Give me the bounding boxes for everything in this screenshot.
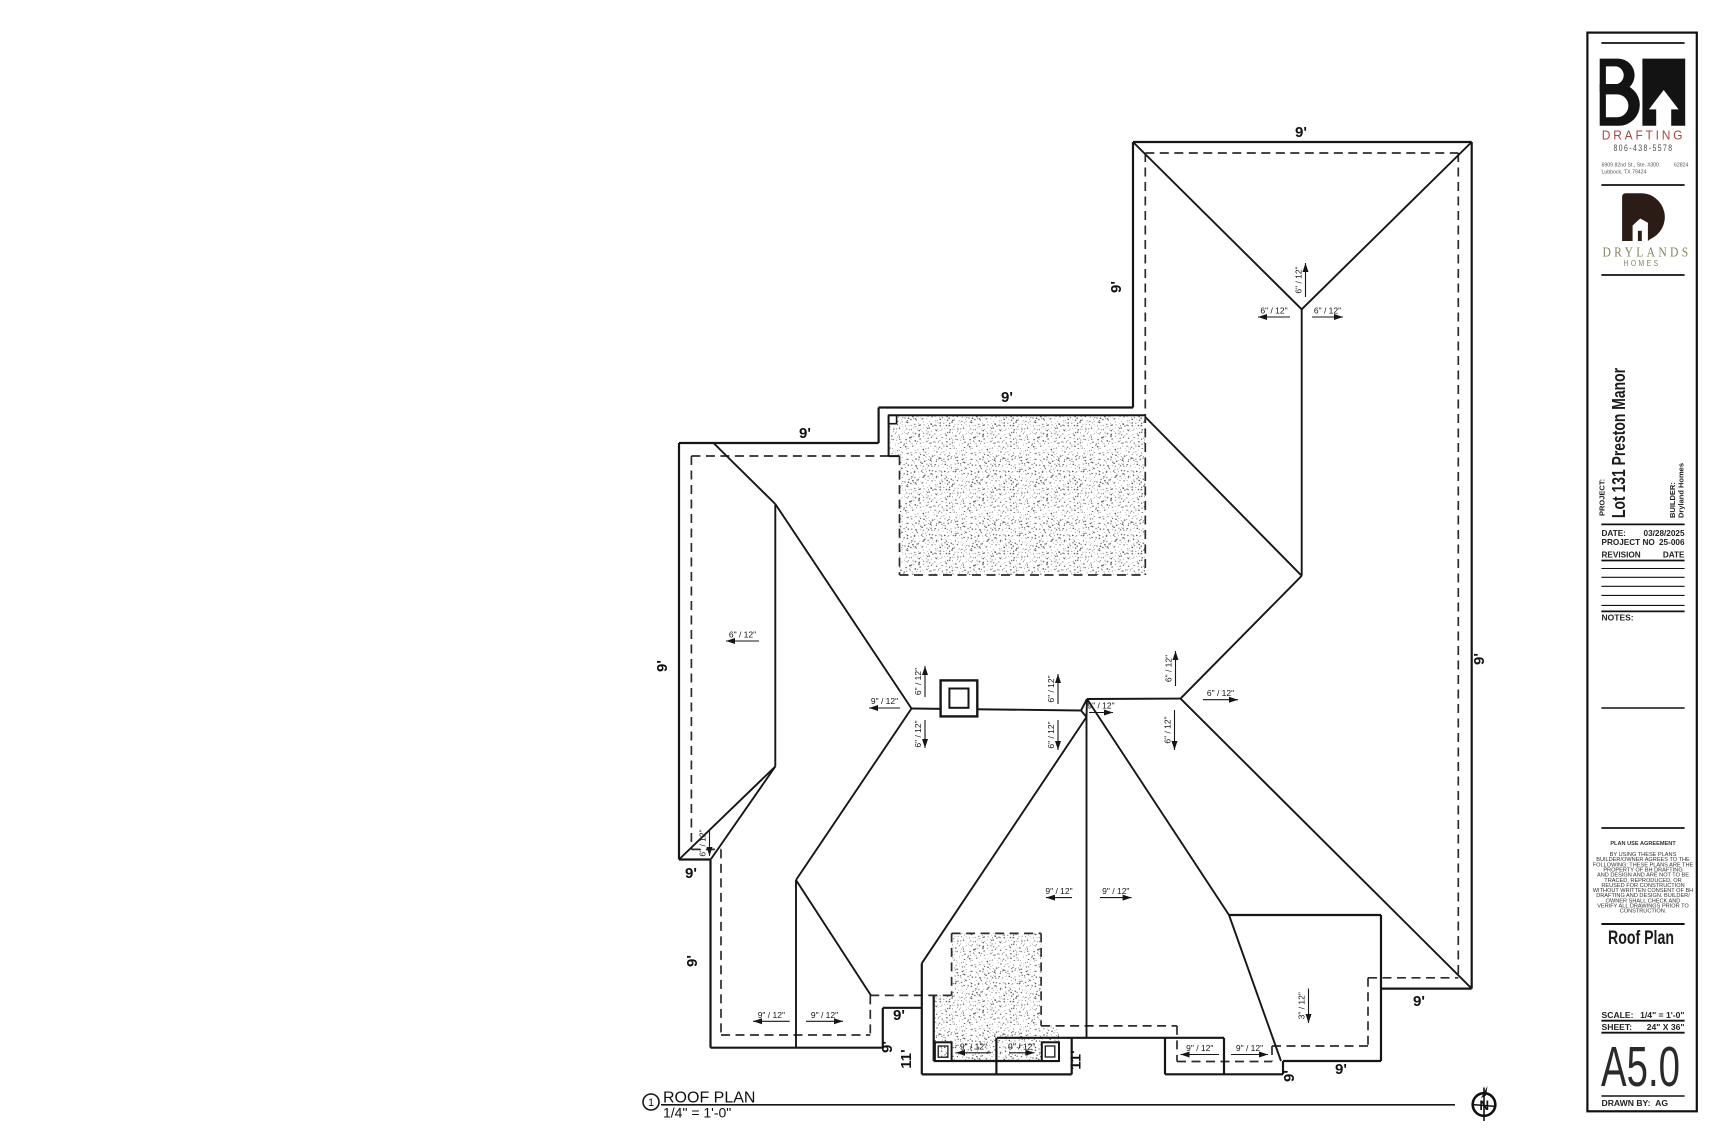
svg-text:1: 1 (648, 1097, 654, 1109)
svg-text:DATE:: DATE: (1602, 529, 1626, 538)
svg-text:9': 9' (1108, 281, 1125, 293)
svg-text:Roof Plan: Roof Plan (1608, 928, 1674, 949)
svg-text:6" / 12": 6" / 12" (1046, 675, 1056, 702)
svg-text:SHEET:: SHEET: (1602, 1022, 1633, 1032)
svg-text:9" / 12": 9" / 12" (960, 1041, 987, 1051)
svg-text:REVISION: REVISION (1602, 551, 1641, 560)
svg-text:9': 9' (1001, 389, 1013, 406)
svg-text:9': 9' (1281, 1070, 1298, 1082)
svg-text:11': 11' (898, 1049, 915, 1068)
svg-text:6" / 12": 6" / 12" (1163, 716, 1173, 743)
svg-text:9': 9' (799, 425, 811, 442)
svg-text:03/28/2025: 03/28/2025 (1644, 529, 1685, 538)
svg-text:9" / 12": 9" / 12" (758, 1010, 785, 1020)
svg-text:PLAN USE AGREEMENT: PLAN USE AGREEMENT (1610, 841, 1676, 847)
svg-text:9': 9' (654, 660, 671, 672)
svg-text:1/4" = 1'-0": 1/4" = 1'-0" (663, 1105, 731, 1121)
svg-text:9" / 12": 9" / 12" (811, 1010, 838, 1020)
svg-text:6" / 12": 6" / 12" (698, 829, 708, 856)
svg-text:NOTES:: NOTES: (1602, 613, 1634, 623)
svg-text:DATE: DATE (1663, 551, 1685, 560)
svg-text:24" X 36": 24" X 36" (1647, 1022, 1685, 1032)
svg-text:9': 9' (879, 1041, 896, 1053)
svg-text:6" / 12": 6" / 12" (729, 630, 756, 640)
svg-text:9': 9' (893, 1007, 905, 1024)
svg-text:9" / 12": 9" / 12" (1186, 1043, 1213, 1053)
svg-text:SCALE:: SCALE: (1602, 1010, 1634, 1020)
svg-text:9': 9' (1413, 993, 1425, 1010)
svg-text:DRAWN BY:: DRAWN BY: (1602, 1098, 1651, 1108)
svg-text:Dryland Homes: Dryland Homes (1677, 463, 1686, 518)
svg-text:PROJECT:: PROJECT: (1598, 479, 1607, 516)
svg-text:9" / 12": 9" / 12" (1045, 886, 1072, 896)
svg-text:9" / 12": 9" / 12" (1236, 1043, 1263, 1053)
svg-text:11': 11' (1068, 1050, 1085, 1069)
svg-text:6909 82nd St., Ste. #300: 6909 82nd St., Ste. #300 (1602, 163, 1660, 169)
svg-text:6" / 12": 6" / 12" (913, 668, 923, 695)
svg-text:806-438-5578: 806-438-5578 (1614, 143, 1674, 154)
svg-text:1/4" = 1'-0": 1/4" = 1'-0" (1640, 1010, 1684, 1020)
svg-text:6" / 12": 6" / 12" (1046, 721, 1056, 748)
svg-text:Lubbock, TX 79424: Lubbock, TX 79424 (1602, 170, 1647, 176)
svg-text:A5.0: A5.0 (1601, 1035, 1680, 1099)
svg-text:6" / 12": 6" / 12" (1260, 306, 1287, 316)
svg-text:6" / 12": 6" / 12" (913, 720, 923, 747)
svg-text:AG: AG (1655, 1098, 1668, 1108)
svg-text:DRAFTING: DRAFTING (1602, 128, 1686, 143)
svg-text:3" / 12": 3" / 12" (1297, 992, 1307, 1019)
svg-text:6" / 12": 6" / 12" (1294, 266, 1304, 293)
svg-text:9': 9' (1471, 653, 1488, 665)
svg-text:PROJECT NO: PROJECT NO (1602, 538, 1656, 547)
svg-text:CONSTRUCTION.: CONSTRUCTION. (1620, 909, 1667, 915)
svg-text:6" / 12": 6" / 12" (1207, 688, 1234, 698)
svg-text:9': 9' (685, 865, 697, 882)
svg-text:9" / 12": 9" / 12" (1087, 701, 1114, 711)
svg-text:9" / 12": 9" / 12" (871, 696, 898, 706)
svg-text:9" / 12": 9" / 12" (1008, 1041, 1035, 1051)
svg-text:9': 9' (684, 955, 701, 967)
svg-text:6" / 12": 6" / 12" (1164, 655, 1174, 682)
svg-text:9': 9' (1295, 124, 1307, 141)
svg-text:62824: 62824 (1674, 163, 1689, 169)
svg-text:6" / 12": 6" / 12" (1314, 306, 1341, 316)
svg-text:9" / 12": 9" / 12" (1102, 886, 1129, 896)
svg-text:25-006: 25-006 (1659, 538, 1685, 547)
svg-text:N: N (1479, 1098, 1489, 1113)
svg-text:9': 9' (1335, 1061, 1347, 1078)
svg-text:Lot 131 Preston Manor: Lot 131 Preston Manor (1608, 368, 1629, 518)
svg-text:HOMES: HOMES (1624, 258, 1661, 268)
